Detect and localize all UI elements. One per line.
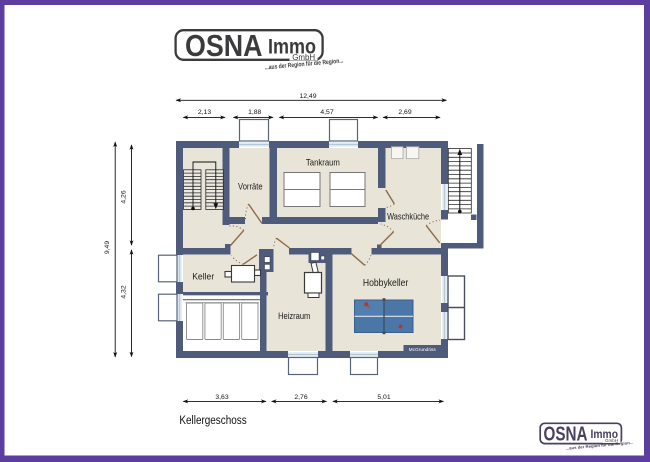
svg-text:OSNA: OSNA <box>185 29 263 63</box>
svg-text:1,88: 1,88 <box>248 109 261 116</box>
svg-text:Heizraum: Heizraum <box>278 311 310 321</box>
svg-text:Hobbykeller: Hobbykeller <box>363 278 409 289</box>
svg-text:4,57: 4,57 <box>320 109 333 116</box>
svg-text:Kellergeschoss: Kellergeschoss <box>179 415 247 427</box>
svg-text:Vorräte: Vorräte <box>238 182 263 192</box>
svg-text:9,49: 9,49 <box>104 241 111 254</box>
svg-text:5,01: 5,01 <box>377 394 390 401</box>
svg-text:McGrundriss: McGrundriss <box>409 347 437 353</box>
svg-text:Keller: Keller <box>192 271 214 281</box>
svg-text:4,32: 4,32 <box>120 285 127 298</box>
svg-text:Waschküche: Waschküche <box>387 211 429 221</box>
svg-text:Tankraum: Tankraum <box>306 158 340 168</box>
svg-text:4,26: 4,26 <box>120 190 127 203</box>
svg-text:2,76: 2,76 <box>294 394 307 401</box>
svg-text:2,69: 2,69 <box>398 109 411 116</box>
svg-text:2,13: 2,13 <box>198 109 211 116</box>
svg-text:3,63: 3,63 <box>215 394 228 401</box>
svg-text:12,49: 12,49 <box>299 93 316 100</box>
svg-text:OSNA: OSNA <box>544 424 588 446</box>
